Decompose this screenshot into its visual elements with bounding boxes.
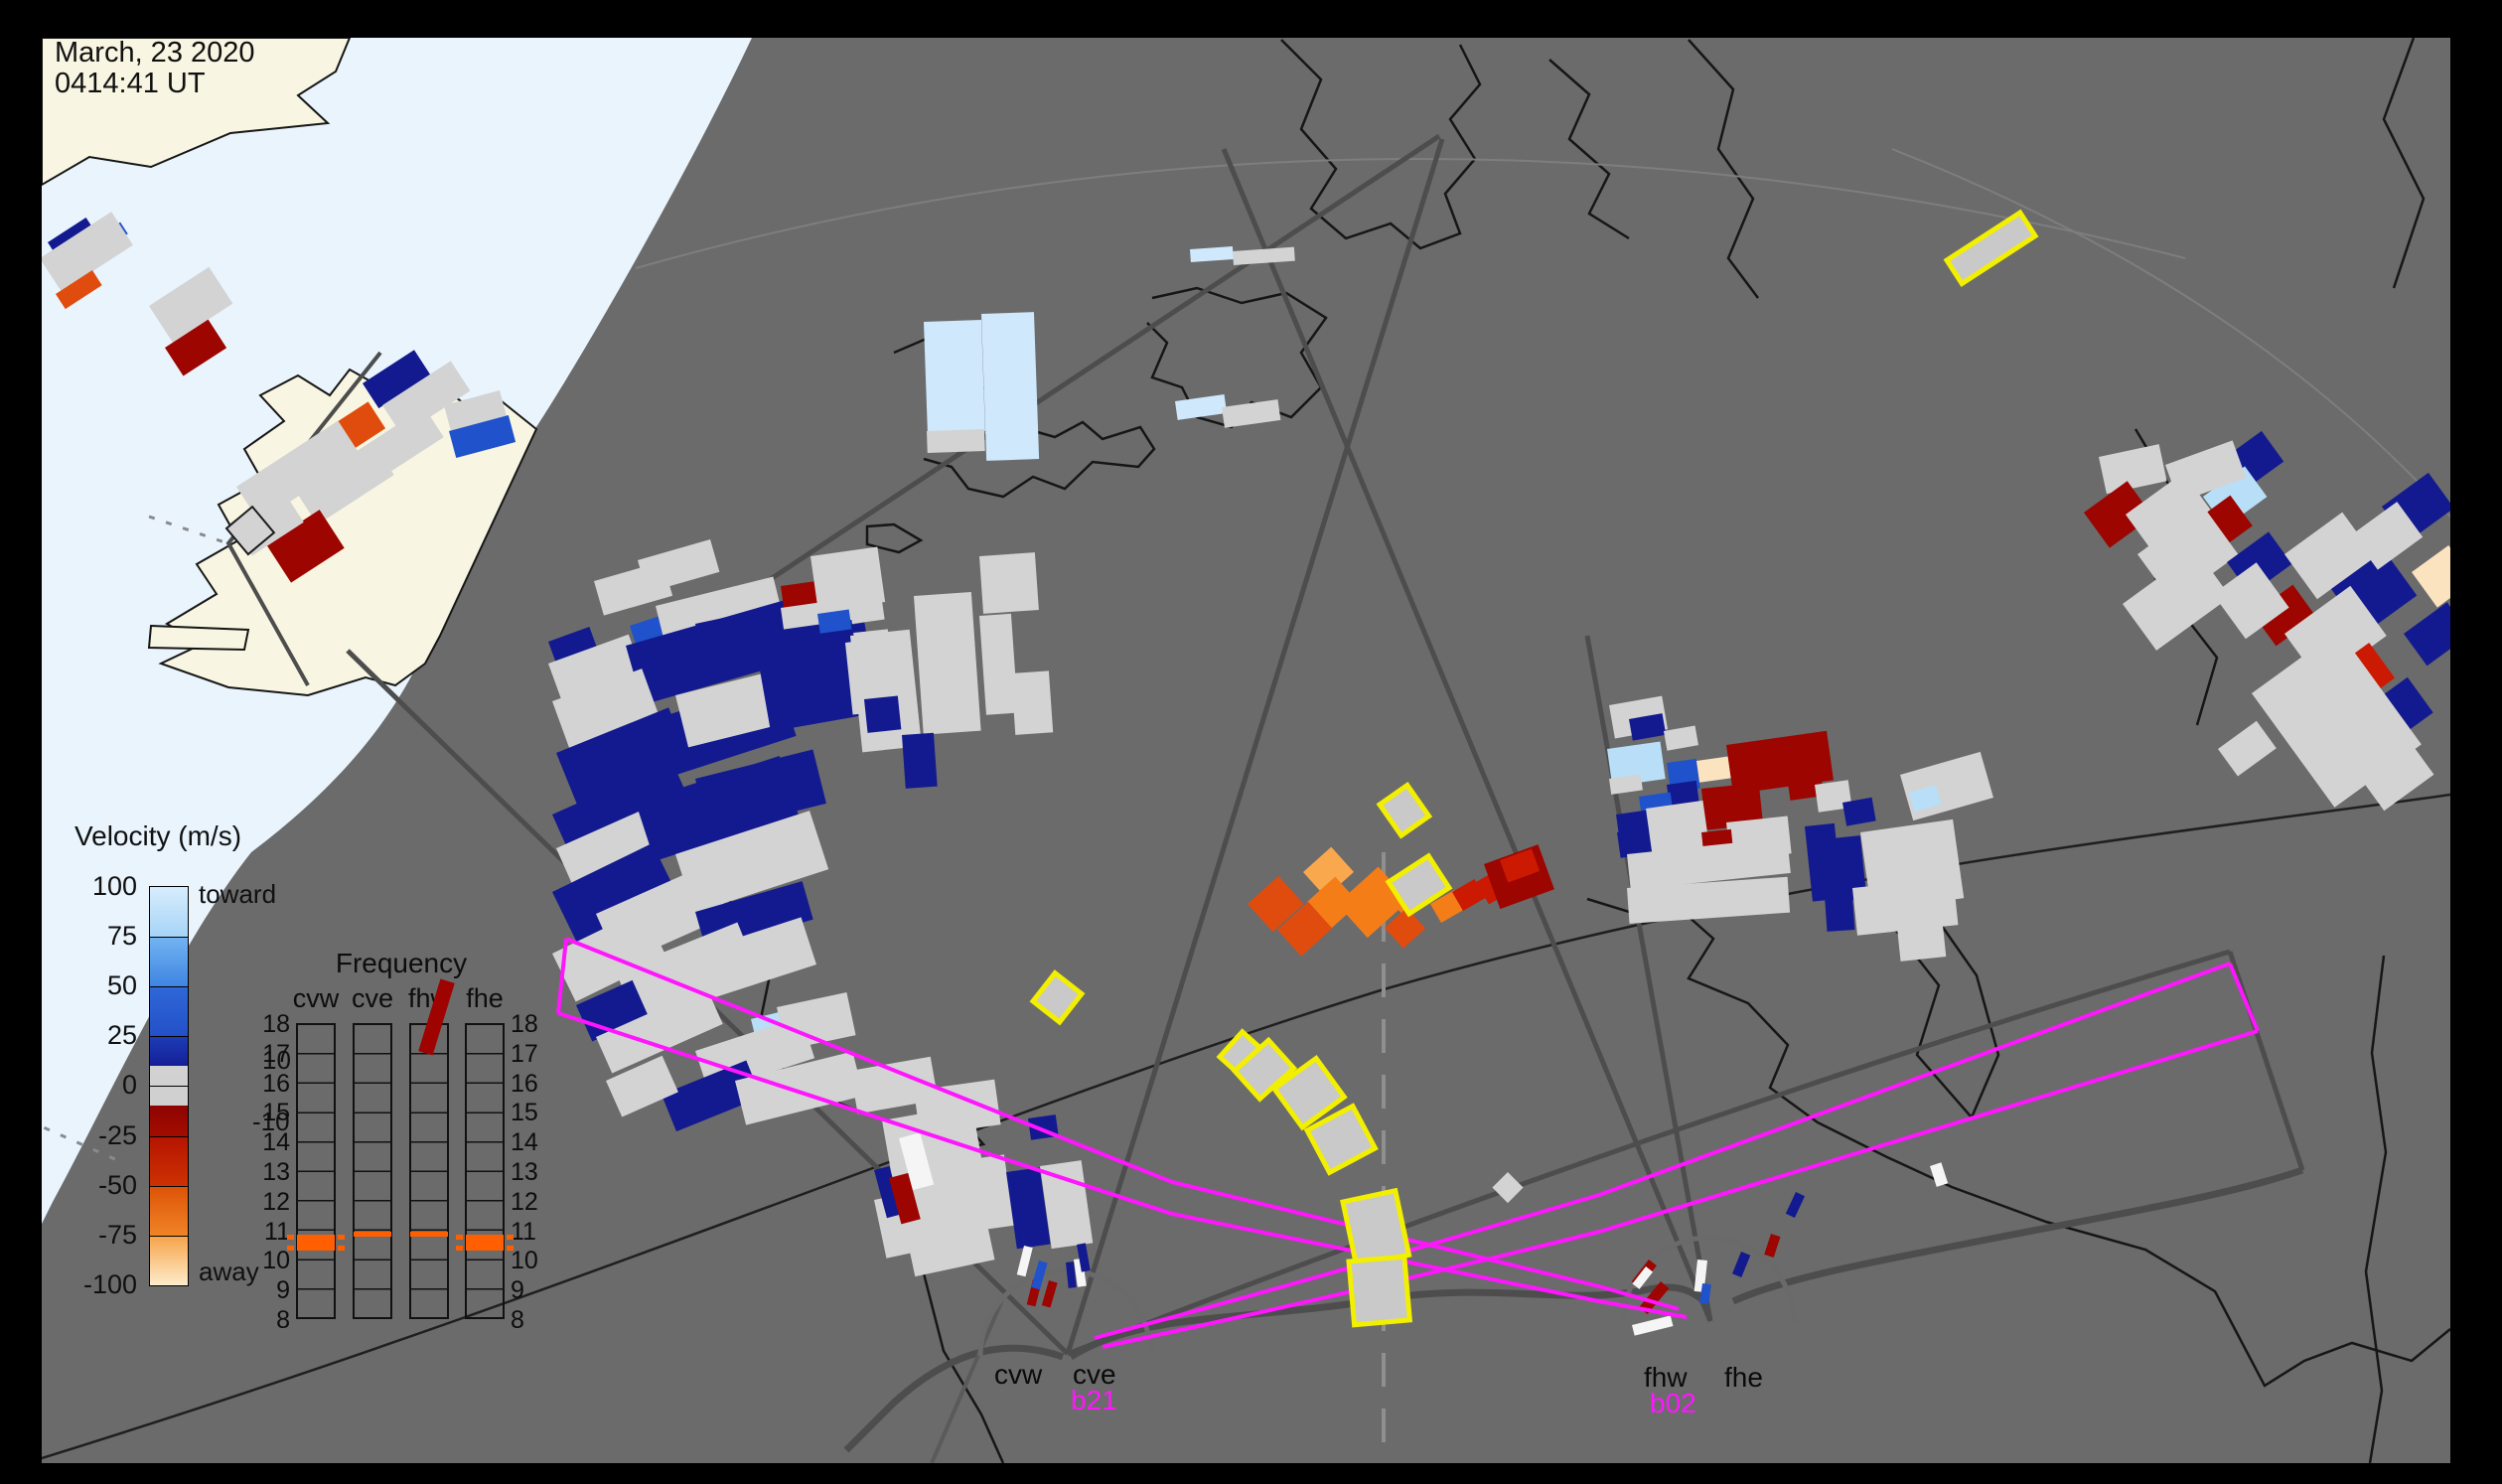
velocity-legend-title: Velocity (m/s) (74, 820, 241, 852)
frequency-scale-right: 12 (511, 1188, 562, 1217)
velocity-tick-label: -75 (43, 1220, 137, 1251)
velocity-cell (1897, 923, 1946, 962)
velocity-cell (1696, 757, 1731, 783)
timestamp-time: 0414:41 UT (55, 69, 255, 99)
frequency-scale-left: 17 (238, 1040, 290, 1069)
colorbar-tick-line (150, 986, 188, 987)
colorbar-tick-line (150, 1086, 188, 1087)
frequency-mark-block (297, 1235, 335, 1251)
velocity-cell (850, 630, 922, 753)
frequency-mark-dash (338, 1235, 345, 1240)
frequency-scale-right: 10 (511, 1247, 562, 1275)
frequency-scale-right: 9 (511, 1276, 562, 1305)
frequency-mark-dash (507, 1246, 514, 1251)
velocity-tick-label: 100 (43, 871, 137, 902)
frequency-mark-dash (338, 1246, 345, 1251)
frequency-scale-right: 8 (511, 1306, 562, 1335)
velocity-cell (924, 320, 985, 433)
velocity-tick-label: -100 (43, 1269, 137, 1300)
colorbar-segment (150, 887, 188, 937)
frequency-mark-dash (456, 1246, 463, 1251)
velocity-tick-label: 50 (43, 970, 137, 1001)
colorbar-segment (150, 1136, 188, 1186)
velocity-tick-label: -50 (43, 1170, 137, 1201)
frequency-scale-left: 14 (238, 1128, 290, 1157)
colorbar-tick-line (150, 1036, 188, 1037)
frequency-scale-right: 16 (511, 1070, 562, 1099)
beam-label-b21: b21 (1071, 1385, 1117, 1416)
colorbar-segment (150, 1106, 188, 1136)
frequency-scale-right: 15 (511, 1099, 562, 1127)
colorbar-segment (150, 1036, 188, 1066)
velocity-colorbar (149, 886, 189, 1286)
frequency-scale-right: 18 (511, 1010, 562, 1039)
velocity-tick-label: -25 (43, 1120, 137, 1151)
frequency-column-header-fhe: fhe (457, 983, 513, 1014)
frequency-column-fhe (465, 1023, 505, 1319)
velocity-cell (864, 695, 901, 732)
frequency-scale-left: 10 (238, 1247, 290, 1275)
velocity-tick-label: 0 (43, 1070, 137, 1101)
frequency-mark-line (410, 1232, 448, 1237)
frequency-column-cvw (296, 1023, 336, 1319)
frequency-scale-left: 8 (238, 1306, 290, 1335)
colorbar-segment (150, 937, 188, 986)
toward-label: toward (199, 879, 276, 910)
velocity-cell (1825, 894, 1854, 932)
frequency-column-header-cvw: cvw (288, 983, 344, 1014)
frequency-scale-left: 12 (238, 1188, 290, 1217)
colorbar-segment (150, 1186, 188, 1236)
colorbar-tick-line (150, 1236, 188, 1237)
frequency-column-cve (353, 1023, 392, 1319)
ground-scatter-cell (1349, 1257, 1409, 1325)
velocity-cell (902, 733, 938, 789)
velocity-cell (914, 592, 981, 735)
frequency-scale-left: 15 (238, 1099, 290, 1127)
velocity-cell (981, 312, 1039, 461)
velocity-cell (1011, 670, 1053, 734)
frequency-mark-block (466, 1235, 504, 1251)
colorbar-tick-line (150, 937, 188, 938)
frequency-column-fhw (409, 1023, 449, 1319)
frequency-scale-right: 13 (511, 1158, 562, 1187)
frequency-mark-dash (287, 1246, 294, 1251)
velocity-cell (1842, 798, 1876, 826)
site-label-fhe: fhe (1724, 1362, 1763, 1394)
frequency-column-header-cve: cve (345, 983, 400, 1014)
frequency-mark-dash (456, 1235, 463, 1240)
frequency-scale-right: 14 (511, 1128, 562, 1157)
frequency-scale-left: 9 (238, 1276, 290, 1305)
frequency-scale-right: 11 (511, 1218, 562, 1247)
frequency-scale-left: 11 (238, 1218, 290, 1247)
frequency-scale-right: 17 (511, 1040, 562, 1069)
velocity-cell (810, 547, 885, 612)
frequency-mark-line (354, 1232, 391, 1237)
velocity-tick-label: 75 (43, 921, 137, 952)
beam-label-b02: b02 (1650, 1388, 1696, 1419)
timestamp-date: March, 23 2020 (55, 38, 255, 69)
velocity-tick-label: 25 (43, 1020, 137, 1051)
frequency-scale-left: 13 (238, 1158, 290, 1187)
velocity-cell (927, 429, 985, 453)
colorbar-tick-line (150, 1136, 188, 1137)
colorbar-segment (150, 986, 188, 1036)
frequency-mark-dash (287, 1235, 294, 1240)
frequency-scale-left: 18 (238, 1010, 290, 1039)
timestamp: March, 23 2020 0414:41 UT (55, 38, 255, 99)
velocity-cell (979, 552, 1039, 614)
radar-map-screen: March, 23 2020 0414:41 UT Velocity (m/s)… (0, 0, 2502, 1484)
frequency-panel-title: Frequency (296, 948, 507, 979)
frequency-mark-dash (507, 1235, 514, 1240)
colorbar-segment (150, 1236, 188, 1285)
frequency-scale-left: 16 (238, 1070, 290, 1099)
colorbar-tick-line (150, 1186, 188, 1187)
site-label-cvw: cvw (994, 1359, 1042, 1391)
